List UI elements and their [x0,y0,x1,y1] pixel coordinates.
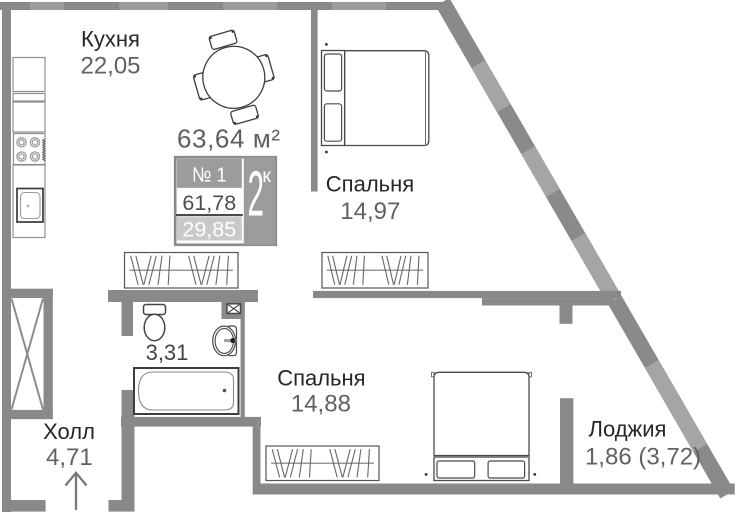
svg-text:1,86 (3,72): 1,86 (3,72) [585,444,701,471]
svg-text:22,05: 22,05 [80,52,140,79]
svg-text:63,64 м²: 63,64 м² [177,124,280,154]
svg-text:3,31: 3,31 [146,340,189,365]
svg-text:61,78: 61,78 [182,191,236,215]
svg-text:№ 1: № 1 [192,164,227,187]
svg-text:4,71: 4,71 [46,444,93,471]
svg-text:14,97: 14,97 [340,198,400,225]
svg-text:к: к [262,166,271,187]
svg-text:Холл: Холл [43,419,95,444]
svg-text:Лоджия: Лоджия [589,417,667,442]
svg-text:Спальня: Спальня [326,172,414,197]
svg-text:14,88: 14,88 [291,391,351,418]
svg-text:29,85: 29,85 [182,217,236,241]
svg-text:Кухня: Кухня [81,26,140,51]
svg-text:Спальня: Спальня [277,366,365,391]
